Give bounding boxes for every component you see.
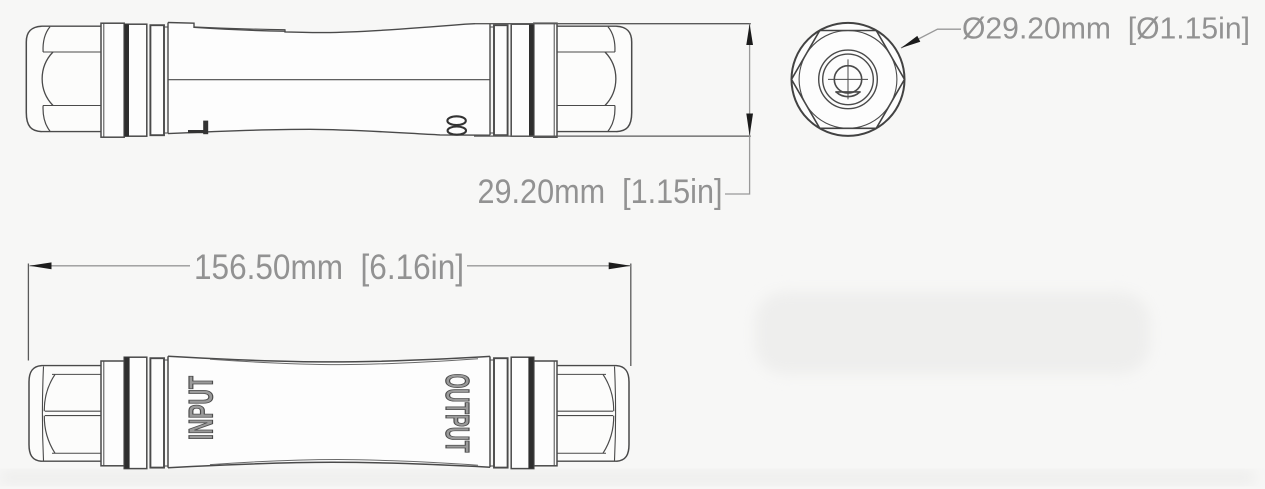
svg-text:156.50mm [6.16in]: 156.50mm [6.16in]	[194, 248, 464, 287]
svg-text:INPUT: INPUT	[183, 376, 221, 440]
svg-text:29.20mm [1.15in]: 29.20mm [1.15in]	[478, 173, 723, 211]
svg-text:Ø29.20mm [Ø1.15in]: Ø29.20mm [Ø1.15in]	[962, 11, 1250, 46]
svg-text:OUTPUT: OUTPUT	[439, 374, 476, 453]
